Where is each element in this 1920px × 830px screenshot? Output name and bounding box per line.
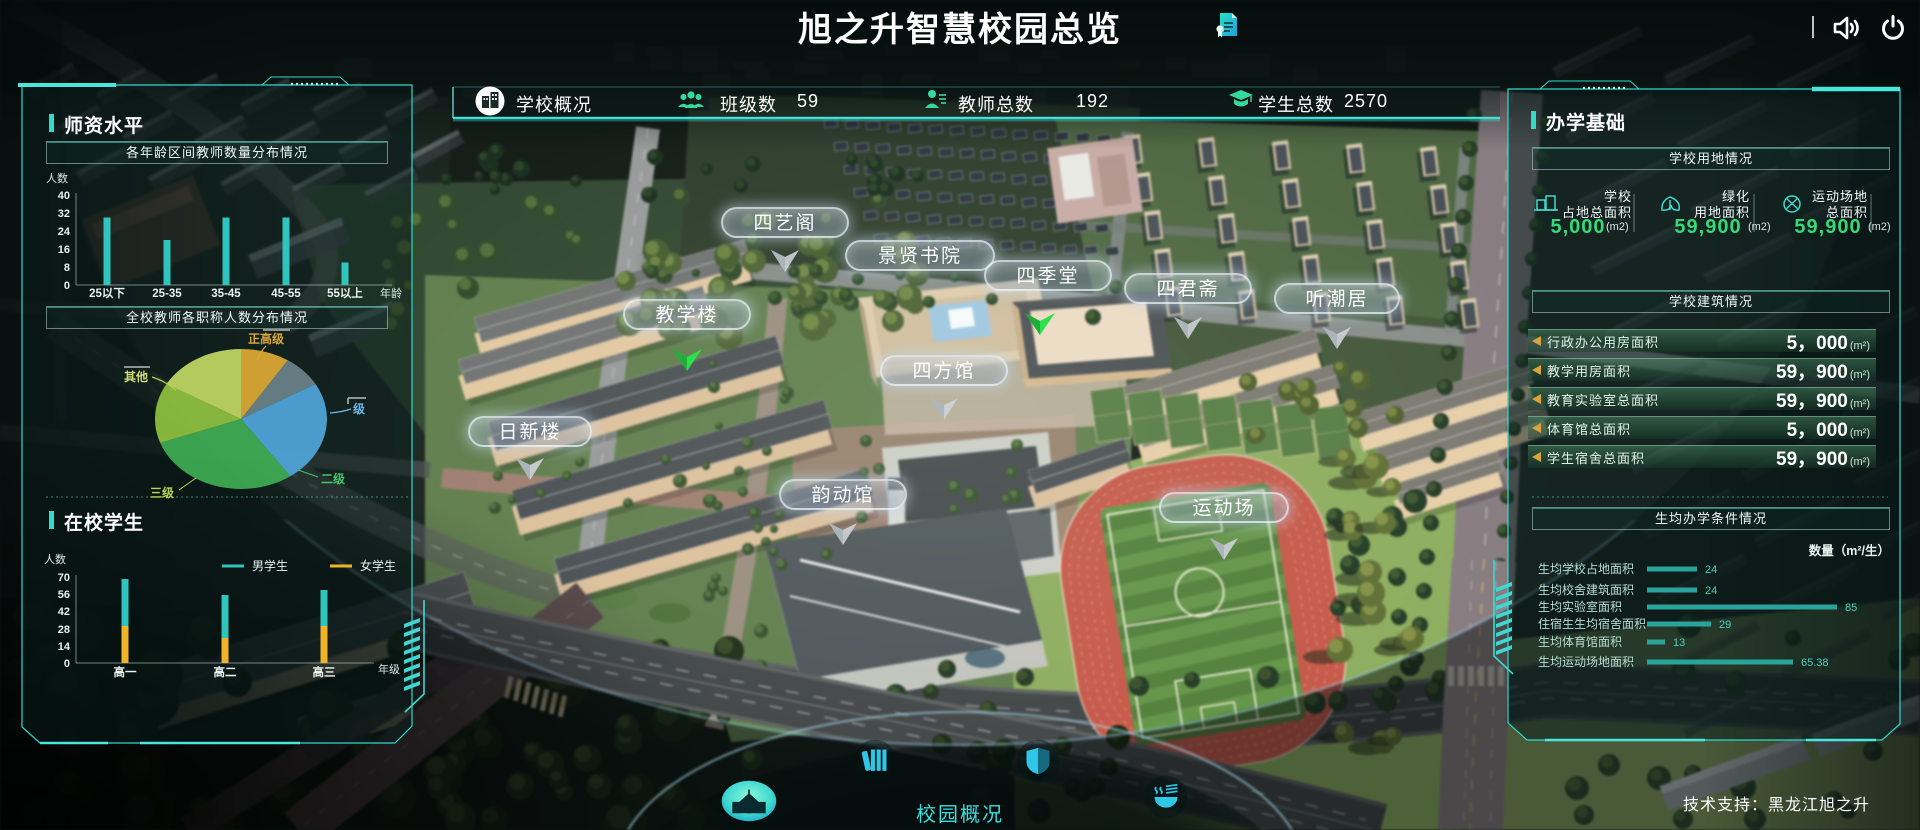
svg-text:14: 14: [58, 641, 71, 653]
svg-text:35-45: 35-45: [211, 288, 241, 300]
svg-text:32: 32: [58, 208, 70, 220]
svg-text:生均学校占地面积: 生均学校占地面积: [1538, 561, 1634, 576]
svg-text:正高级: 正高级: [248, 331, 284, 346]
svg-text:28: 28: [58, 624, 70, 636]
svg-text:高二: 高二: [214, 665, 237, 679]
svg-text:65.38: 65.38: [1801, 657, 1829, 669]
svg-text:85: 85: [1845, 602, 1857, 614]
svg-text:16: 16: [58, 244, 70, 256]
svg-text:三级: 三级: [150, 485, 174, 500]
svg-text:13: 13: [1673, 637, 1685, 649]
svg-text:级: 级: [353, 401, 365, 416]
svg-text:24: 24: [1705, 564, 1717, 576]
svg-text:高三: 高三: [313, 665, 336, 679]
svg-text:男学生: 男学生: [252, 558, 288, 573]
svg-text:生均校舍建筑面积: 生均校舍建筑面积: [1538, 582, 1634, 597]
svg-text:人数: 人数: [46, 172, 68, 185]
svg-text:24: 24: [58, 226, 71, 238]
svg-text:70: 70: [58, 572, 70, 584]
svg-text:住宿生生均宿舍面积: 住宿生生均宿舍面积: [1538, 616, 1646, 631]
svg-text:其他: 其他: [124, 369, 148, 384]
svg-text:8: 8: [64, 262, 70, 274]
svg-text:生均实验室面积: 生均实验室面积: [1538, 599, 1622, 614]
svg-text:24: 24: [1705, 585, 1717, 597]
svg-text:生均运动场地面积: 生均运动场地面积: [1538, 655, 1634, 669]
svg-text:二级: 二级: [321, 471, 345, 486]
svg-text:年龄: 年龄: [380, 286, 402, 300]
svg-text:0: 0: [64, 280, 70, 292]
svg-text:55以上: 55以上: [327, 286, 363, 300]
svg-text:25以下: 25以下: [89, 287, 125, 300]
svg-text:25-35: 25-35: [152, 288, 182, 300]
svg-text:高一: 高一: [114, 665, 137, 679]
svg-text:45-55: 45-55: [271, 288, 301, 300]
svg-text:年级: 年级: [378, 662, 400, 676]
svg-text:0: 0: [64, 658, 70, 670]
svg-text:女学生: 女学生: [360, 558, 396, 573]
svg-text:56: 56: [58, 589, 70, 601]
svg-text:40: 40: [58, 190, 70, 202]
svg-text:生均体育馆面积: 生均体育馆面积: [1538, 634, 1622, 649]
svg-text:29: 29: [1719, 619, 1731, 631]
svg-text:42: 42: [58, 606, 70, 618]
svg-text:人数: 人数: [44, 553, 66, 566]
